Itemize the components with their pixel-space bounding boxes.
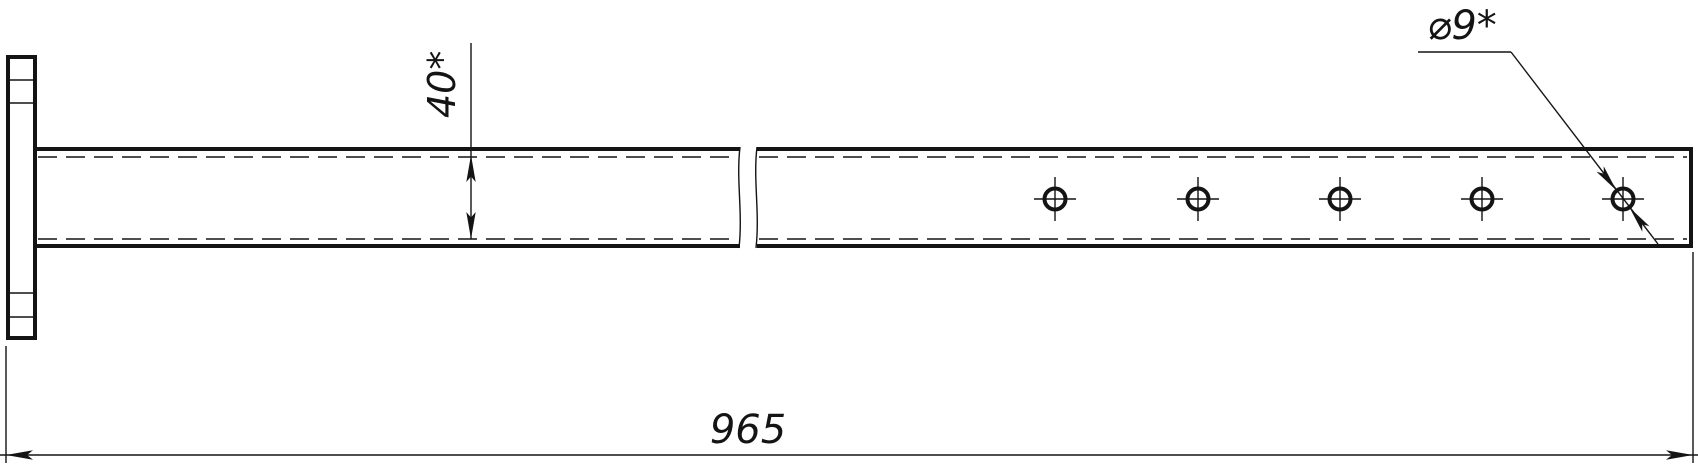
hole-4 (1461, 177, 1503, 221)
break-line-left (739, 147, 741, 248)
length-dimension-label: 965 (710, 407, 786, 453)
end-plate (8, 57, 35, 338)
bar-right-segment (756, 147, 1691, 248)
hole-2 (1177, 177, 1219, 221)
hole-1 (1034, 177, 1076, 221)
end-plate-outline (8, 57, 35, 338)
bar-left-segment (35, 147, 740, 248)
drawing-canvas: 40* 965 ⌀9* (0, 0, 1698, 472)
dimension-width: 40* (420, 43, 476, 239)
width-dimension-label: 40* (420, 51, 464, 118)
hole-diameter-label: ⌀9* (1427, 3, 1497, 49)
break-line-right (756, 147, 758, 248)
arrowhead-upper (1597, 166, 1617, 190)
dimension-length: 965 (0, 252, 1698, 463)
holes (1034, 177, 1644, 221)
technical-drawing: 40* 965 ⌀9* (0, 0, 1698, 472)
hole-3 (1319, 177, 1361, 221)
